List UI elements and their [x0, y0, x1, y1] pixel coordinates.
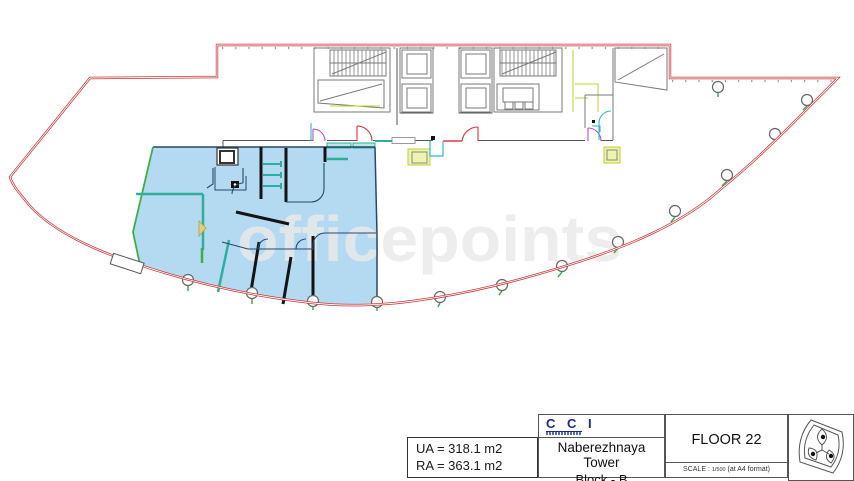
door-swings: [311, 111, 611, 141]
scale-ratio: 1/500: [712, 467, 726, 473]
block-name: Block - B: [539, 472, 664, 481]
cci-tagline-blur: [546, 431, 582, 435]
scale-label: SCALE : 1/500 (at A4 format): [666, 463, 787, 473]
cci-logo: C C I: [546, 417, 664, 430]
floor-box: FLOOR 22 SCALE : 1/500 (at A4 format): [665, 414, 788, 478]
key-plan-box: [788, 414, 854, 481]
sensor-dot: [592, 120, 595, 123]
stairwell-left: [314, 48, 390, 112]
building-name: Naberezhnaya Tower: [539, 440, 664, 470]
stairwell-right: [494, 48, 562, 112]
usable-area-label: UA = 318.1 m2: [416, 440, 537, 457]
key-plan-icon: [789, 415, 853, 480]
floor-plan-drawing: officepoints: [0, 0, 854, 481]
building-name-box: C C I Naberezhnaya Tower Block - B: [538, 414, 665, 478]
elevator-bank-left: [400, 48, 433, 113]
elevator-bank-right: [459, 48, 492, 113]
rentable-area-label: RA = 363.1 m2: [416, 457, 537, 474]
floor-plan-page: officepoints: [0, 0, 854, 481]
floor-label: FLOOR 22: [666, 415, 787, 463]
company-logo-row: C C I: [539, 415, 664, 438]
scale-suffix: (at A4 format): [726, 466, 770, 473]
building-core: [314, 48, 667, 140]
corridor-dot: [431, 136, 435, 140]
scale-prefix: SCALE :: [683, 466, 712, 473]
area-info-box: UA = 318.1 m2 RA = 363.1 m2: [407, 437, 538, 478]
